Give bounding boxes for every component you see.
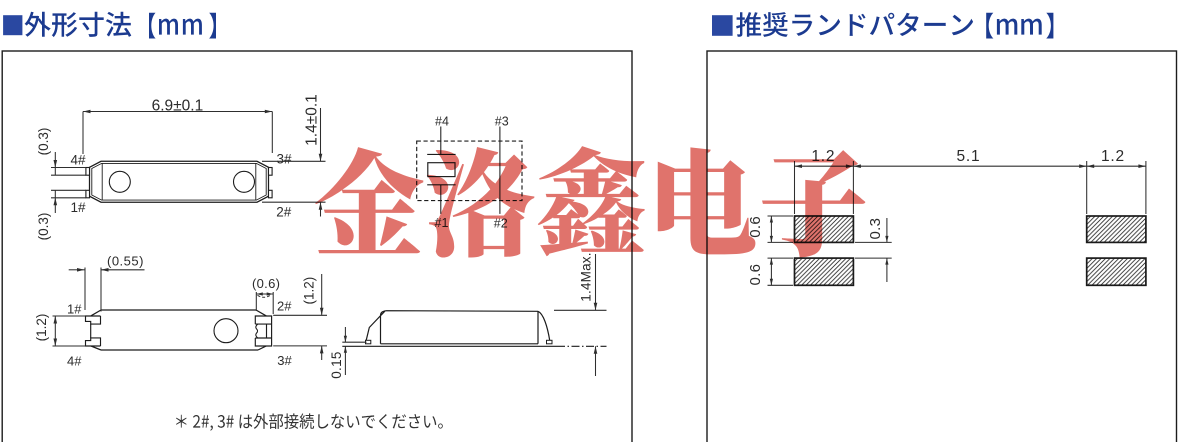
svg-text:(0.3): (0.3) bbox=[36, 213, 51, 241]
svg-text:0.6: 0.6 bbox=[747, 216, 764, 238]
svg-text:2#: 2# bbox=[276, 204, 292, 219]
svg-text:1.2: 1.2 bbox=[811, 148, 835, 165]
svg-text:1#: 1# bbox=[67, 302, 82, 317]
svg-text:1.4±0.1: 1.4±0.1 bbox=[304, 94, 321, 146]
svg-text:6.9±0.1: 6.9±0.1 bbox=[152, 97, 204, 114]
svg-text:(0.6): (0.6) bbox=[252, 276, 280, 291]
svg-text:1.4Max.: 1.4Max. bbox=[579, 252, 594, 301]
svg-text:5.1: 5.1 bbox=[957, 148, 981, 165]
svg-text:2#: 2# bbox=[277, 299, 292, 314]
svg-text:#3: #3 bbox=[495, 114, 509, 128]
svg-text:0.15: 0.15 bbox=[329, 351, 344, 378]
svg-text:1#: 1# bbox=[71, 200, 87, 215]
svg-text:0.3: 0.3 bbox=[867, 218, 884, 240]
svg-text:1.2: 1.2 bbox=[1101, 148, 1125, 165]
svg-text:3#: 3# bbox=[277, 151, 293, 166]
svg-text:4#: 4# bbox=[67, 354, 82, 369]
svg-text:3#: 3# bbox=[277, 353, 292, 368]
svg-text:(0.55): (0.55) bbox=[107, 253, 144, 268]
svg-text:(0.3): (0.3) bbox=[36, 128, 51, 156]
svg-text:#4: #4 bbox=[435, 114, 449, 128]
svg-text:0.6: 0.6 bbox=[747, 264, 764, 286]
svg-text:(1.2): (1.2) bbox=[34, 314, 49, 342]
svg-text:4#: 4# bbox=[71, 153, 87, 168]
svg-text:(1.2): (1.2) bbox=[302, 277, 317, 305]
